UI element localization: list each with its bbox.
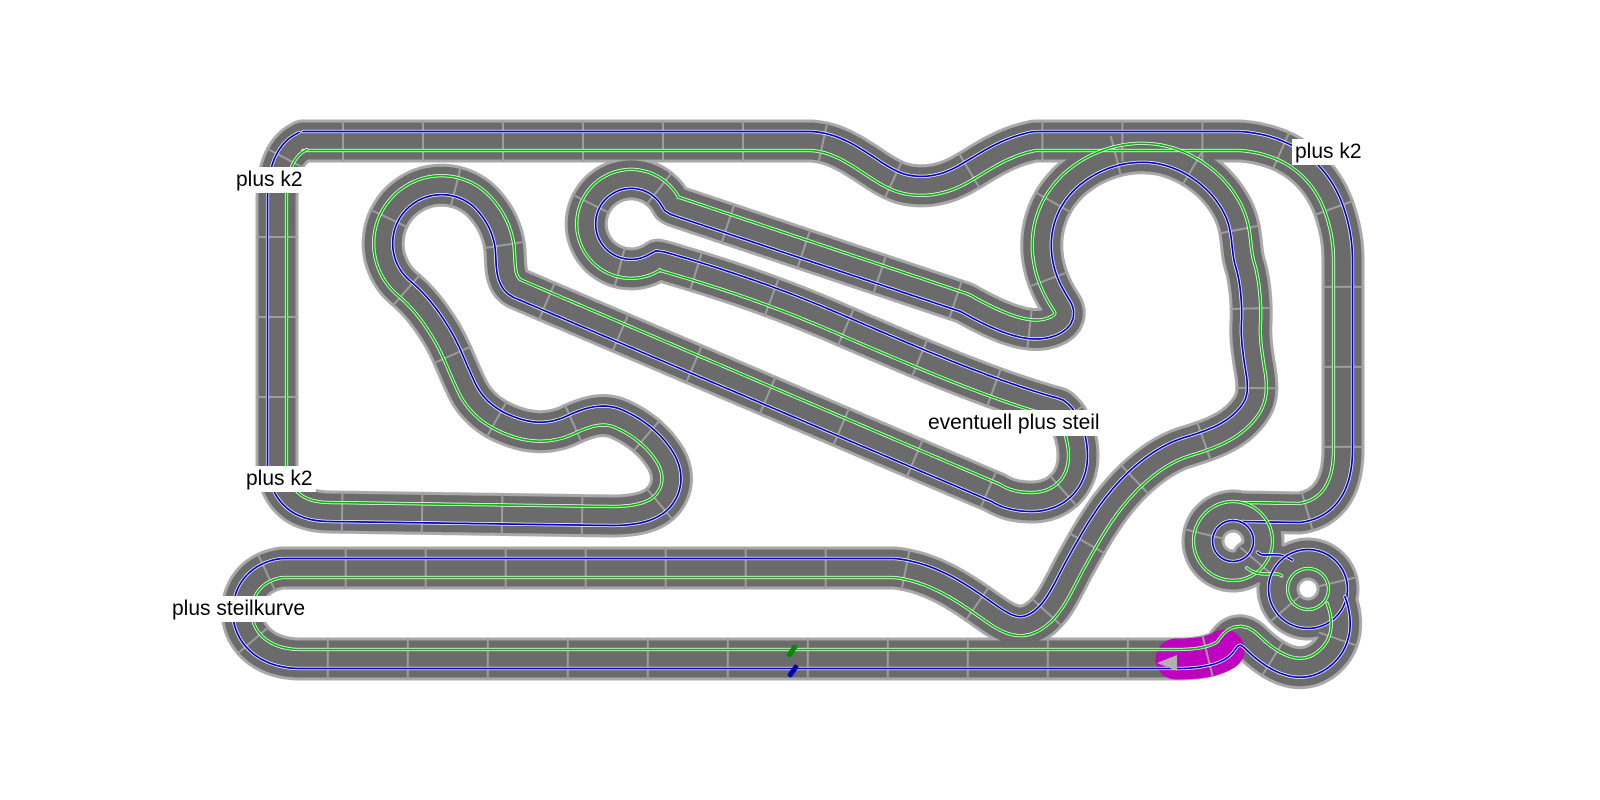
track-canvas[interactable] [0,0,1600,800]
joint-line [1236,388,1277,389]
track-note-middle-right: eventuell plus steil [925,410,1103,436]
joint-line [342,492,343,533]
track-note-top-left: plus k2 [233,167,306,193]
joint-line [582,495,583,536]
joint-line [502,494,503,535]
track-note-top-right: plus k2 [1292,139,1365,165]
joint-line [1231,308,1272,309]
track-design-canvas: plus k2 plus k2 plus k2 eventuell plus s… [0,0,1600,800]
selected-track-piece[interactable] [1176,650,1224,659]
selected-piece-highlight [1176,650,1224,659]
track-note-bottom-left: plus steilkurve [169,596,308,622]
joint-line [422,493,423,534]
track-note-middle-left: plus k2 [243,466,316,492]
